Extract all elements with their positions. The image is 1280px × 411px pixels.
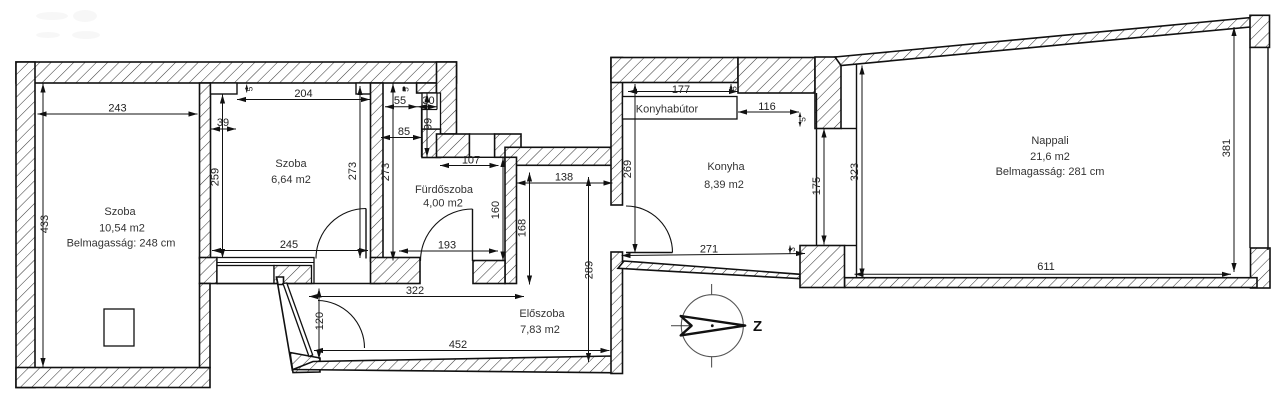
svg-text:243: 243 [108,103,126,115]
svg-text:107: 107 [462,154,480,166]
svg-text:611: 611 [1037,261,1055,273]
svg-text:Konyhabútor: Konyhabútor [636,104,699,116]
svg-text:323: 323 [849,163,861,181]
svg-text:Szoba: Szoba [104,206,136,218]
svg-text:5: 5 [729,86,739,91]
svg-text:Fürdőszoba: Fürdőszoba [415,184,474,196]
svg-text:175: 175 [811,177,823,195]
svg-text:Z: Z [753,318,762,335]
svg-text:8,39 m2: 8,39 m2 [704,179,744,191]
svg-text:5: 5 [401,87,411,92]
svg-text:259: 259 [210,168,222,186]
svg-text:4,00 m2: 4,00 m2 [423,198,463,210]
svg-text:120: 120 [314,312,326,330]
svg-text:381: 381 [1221,139,1233,157]
svg-text:99: 99 [423,118,435,130]
svg-text:433: 433 [39,215,51,233]
svg-text:5: 5 [798,117,808,122]
svg-text:55: 55 [394,95,406,107]
svg-text:7,83 m2: 7,83 m2 [520,324,560,336]
svg-text:452: 452 [449,339,467,351]
svg-text:21,6 m2: 21,6 m2 [1030,151,1070,163]
svg-text:177: 177 [672,84,690,96]
svg-text:Belmagasság: 248 cm: Belmagasság: 248 cm [67,238,176,250]
svg-text:289: 289 [584,261,596,279]
svg-text:322: 322 [406,285,424,297]
svg-text:273: 273 [347,162,359,180]
svg-text:193: 193 [438,240,456,252]
svg-text:245: 245 [280,239,298,251]
svg-text:160: 160 [490,201,502,219]
svg-text:269: 269 [622,160,634,178]
svg-text:Konyha: Konyha [707,161,745,173]
svg-text:116: 116 [758,101,776,113]
svg-text:10,54 m2: 10,54 m2 [99,223,145,235]
svg-text:6,64 m2: 6,64 m2 [271,174,311,186]
svg-text:168: 168 [517,219,529,237]
svg-text:Szoba: Szoba [275,158,307,170]
svg-text:273: 273 [380,163,392,181]
svg-text:3: 3 [787,247,797,252]
svg-text:204: 204 [294,88,312,100]
svg-text:85: 85 [398,126,410,138]
svg-text:271: 271 [700,243,718,255]
svg-text:Előszoba: Előszoba [519,308,565,320]
svg-text:Belmagasság: 281 cm: Belmagasság: 281 cm [996,166,1105,178]
svg-text:138: 138 [555,172,573,184]
svg-text:5: 5 [245,86,255,91]
svg-text:Nappali: Nappali [1031,135,1068,147]
